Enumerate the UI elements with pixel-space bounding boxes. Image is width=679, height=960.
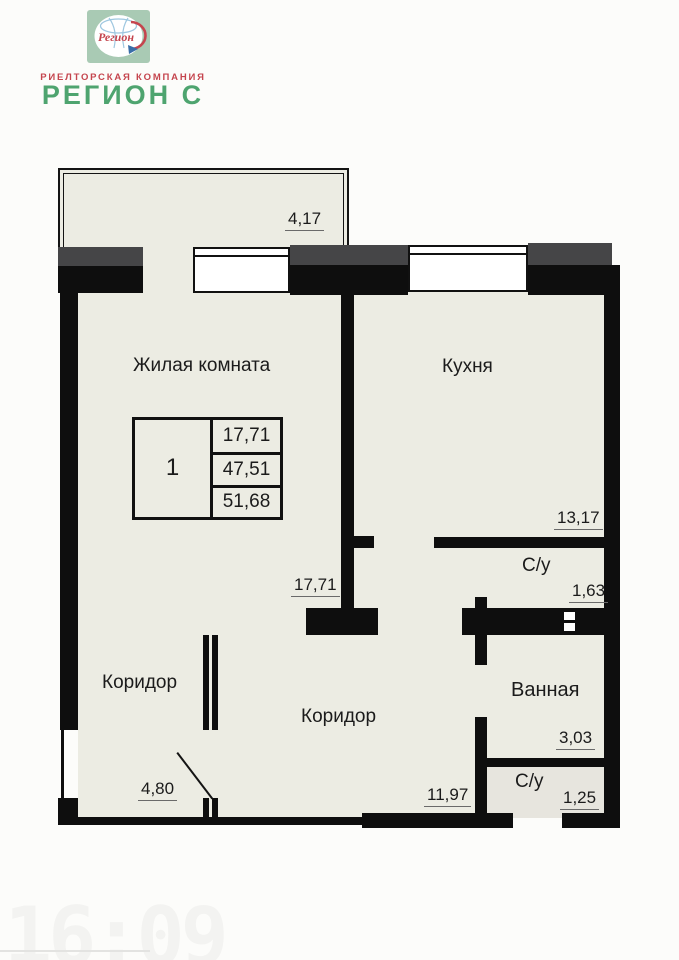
wall-wc-bottom bbox=[462, 608, 613, 635]
living-room-window bbox=[193, 247, 290, 293]
wall-corridor-divider bbox=[203, 635, 218, 730]
door-post bbox=[203, 798, 218, 817]
wall-left bbox=[60, 266, 78, 730]
ventilation-shaft-lower bbox=[563, 622, 576, 632]
wall-slab-top-left bbox=[58, 247, 143, 268]
window-sill-line bbox=[195, 255, 288, 257]
full-area-cell: 51,68 bbox=[213, 485, 280, 517]
bathroom-label: Ванная bbox=[511, 679, 580, 702]
kitchen-label: Кухня bbox=[442, 356, 493, 378]
wall-kitchen-door-stub bbox=[354, 536, 374, 548]
wall-bathroom-left-lower bbox=[475, 717, 487, 828]
kitchen-area-value: 13,17 bbox=[554, 508, 603, 530]
ventilation-shaft-upper bbox=[563, 611, 576, 621]
company-logo: Регион bbox=[87, 10, 150, 63]
room-count-cell: 1 bbox=[135, 420, 213, 517]
wall-bottom-center-segment bbox=[362, 813, 513, 828]
wall-bathroom-wc-divider bbox=[487, 758, 604, 767]
corridor-left-area-value: 4,80 bbox=[138, 779, 177, 801]
wall-left-bottom-block bbox=[58, 798, 78, 819]
balcony-area-value: 4,17 bbox=[285, 209, 324, 231]
wc-upper-label: С/у bbox=[522, 555, 551, 577]
wc-upper-area-value: 1,63 bbox=[569, 581, 608, 603]
living-area-cell: 17,71 bbox=[213, 420, 280, 452]
wc-lower-area-value: 1,25 bbox=[560, 788, 599, 810]
wall-bottom-left-segment bbox=[58, 817, 362, 825]
wall-slab-top-center bbox=[290, 245, 408, 267]
wall-top-center bbox=[290, 265, 408, 295]
bottom-divider-line bbox=[0, 950, 150, 952]
corridor-main-label: Коридор bbox=[301, 706, 376, 728]
wall-right bbox=[604, 265, 620, 828]
svg-text:Регион: Регион bbox=[98, 30, 134, 44]
wall-slab-top-right bbox=[528, 243, 612, 267]
balcony-door-opening bbox=[143, 250, 193, 270]
wall-bottom-right-segment bbox=[562, 813, 620, 828]
wall-stub-above bbox=[475, 597, 487, 608]
corridor-left-label: Коридор bbox=[102, 672, 177, 694]
floorplan-page: Регион РИЕЛТОРСКАЯ КОМПАНИЯ РЕГИОН С Жил… bbox=[0, 0, 679, 960]
total-area-cell: 47,51 bbox=[213, 452, 280, 484]
apartment-info-table: 1 17,71 47,51 51,68 bbox=[132, 417, 283, 520]
kitchen-window bbox=[408, 245, 528, 292]
corridor-main-area-value: 11,97 bbox=[424, 785, 471, 807]
window-sill-line bbox=[410, 253, 526, 255]
wall-bathroom-left-upper bbox=[475, 635, 487, 665]
wc-lower-label: С/у bbox=[515, 771, 544, 793]
living-room-area-value: 17,71 bbox=[291, 575, 340, 597]
wall-kitchen-bottom bbox=[434, 537, 604, 548]
wall-living-bottom-block bbox=[306, 608, 378, 635]
logo-emblem-icon: Регион bbox=[87, 10, 150, 63]
wall-cavity-line bbox=[209, 635, 212, 730]
living-room-label: Жилая комната bbox=[133, 355, 270, 377]
wall-living-kitchen bbox=[341, 295, 354, 610]
bathroom-area-value: 3,03 bbox=[556, 728, 595, 750]
wall-left-window-line bbox=[61, 730, 64, 798]
wall-cavity-line bbox=[209, 798, 212, 817]
brand-company-name: РЕГИОН С bbox=[36, 80, 210, 111]
